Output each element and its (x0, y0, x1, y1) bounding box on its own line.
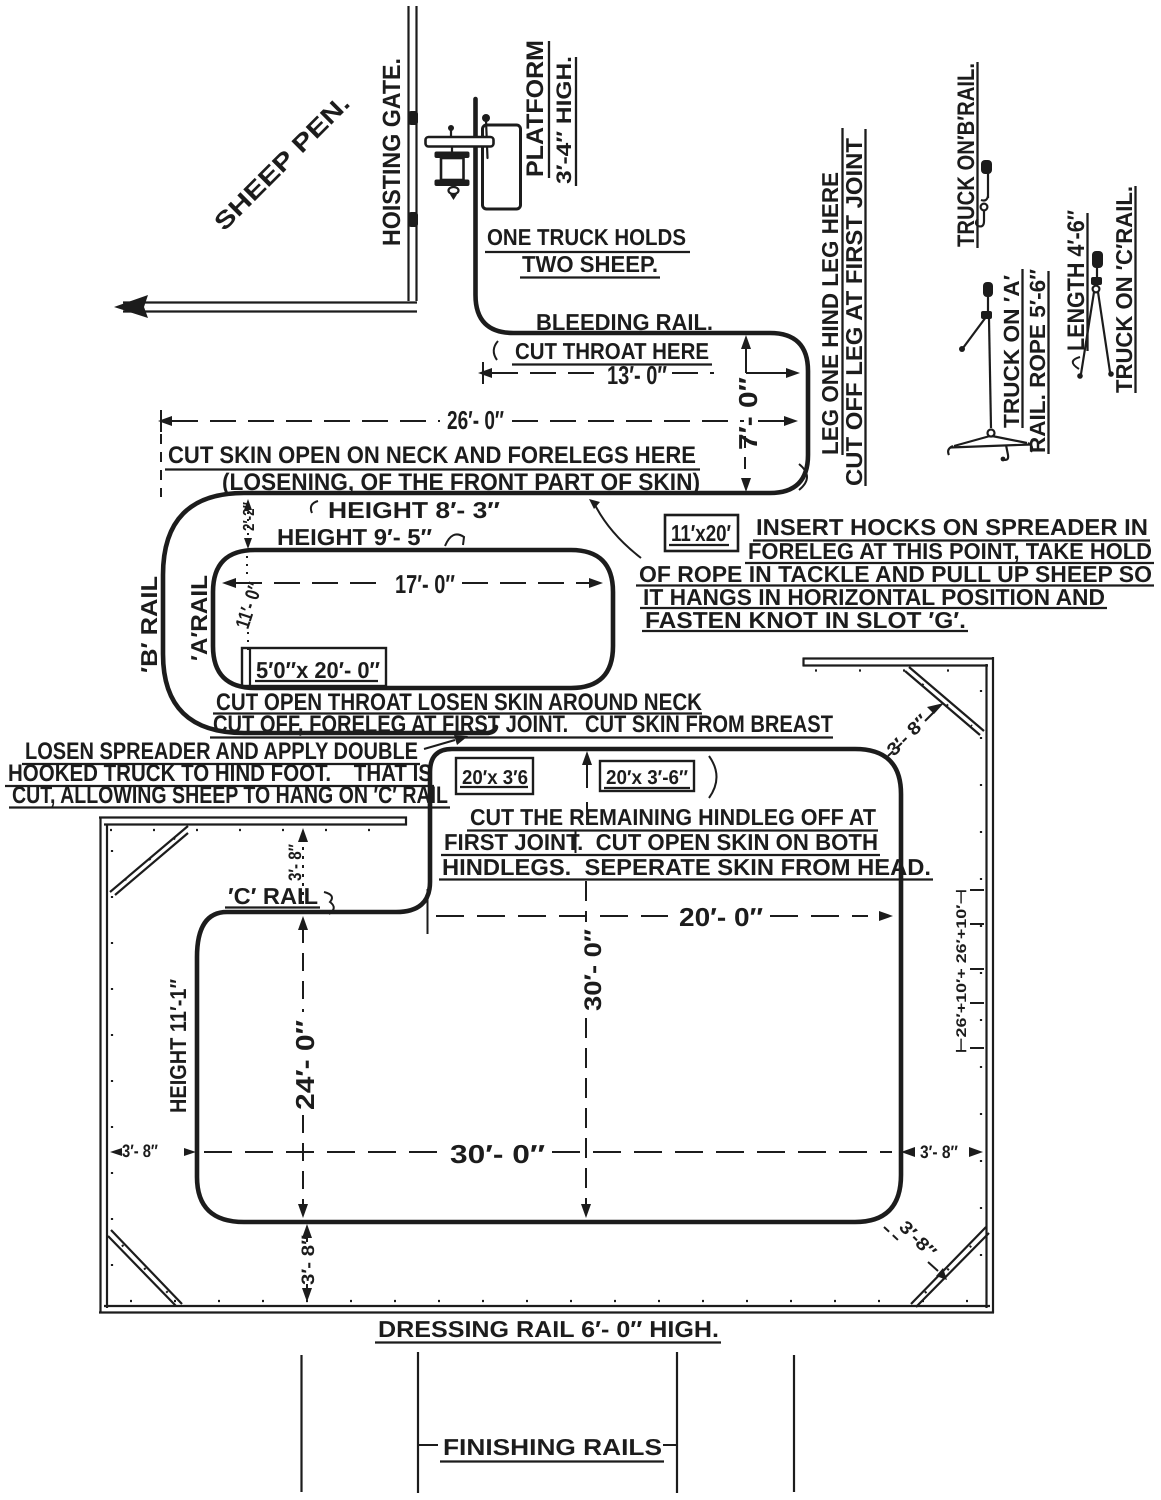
svg-text:3′- 8″: 3′- 8″ (920, 1142, 958, 1162)
svg-text:CUT OFF, FORELEG AT FIRST JOIN: CUT OFF, FORELEG AT FIRST JOINT. CUT SKI… (213, 711, 833, 738)
svg-text:3′- 8″: 3′- 8″ (285, 844, 305, 881)
svg-text:HEIGHT 11′-1″: HEIGHT 11′-1″ (165, 979, 191, 1113)
svg-text:ONE TRUCK HOLDS: ONE TRUCK HOLDS (487, 224, 686, 250)
svg-text:BLEEDING RAIL.: BLEEDING RAIL. (536, 309, 713, 335)
svg-text:3′-4″ HIGH.: 3′-4″ HIGH. (553, 56, 576, 184)
svg-text:26′- 0″: 26′- 0″ (447, 405, 504, 435)
svg-text:CUT, ALLOWING SHEEP TO HANG ON: CUT, ALLOWING SHEEP TO HANG ON ′C′ RAIL (12, 782, 448, 809)
svg-text:LENGTH 4′-6″: LENGTH 4′-6″ (1063, 210, 1090, 351)
svg-text:CUT THE REMAINING HINDLEG OF: CUT THE REMAINING HINDLEG OFF AT (470, 804, 876, 830)
svg-text:2′-2″: 2′-2″ (241, 502, 258, 531)
svg-text:′C′ RAIL: ′C′ RAIL (228, 883, 318, 909)
svg-text:HEIGHT 8′- 3″: HEIGHT 8′- 3″ (328, 497, 500, 523)
svg-text:3′- 8″: 3′- 8″ (298, 1235, 318, 1285)
svg-text:TWO SHEEP.: TWO SHEEP. (522, 251, 658, 277)
svg-text:30′- 0″: 30′- 0″ (580, 928, 607, 1011)
svg-text:HINDLEGS. SEPERATE SKIN FROM: HINDLEGS. SEPERATE SKIN FROM HEAD. (442, 854, 931, 880)
svg-text:11′x20′: 11′x20′ (671, 520, 731, 546)
svg-text:INSERT HOCKS ON SPREADER IN: INSERT HOCKS ON SPREADER IN (756, 514, 1148, 540)
svg-text:PLATFORM: PLATFORM (522, 40, 549, 177)
svg-text:5′0″x 20′- 0″: 5′0″x 20′- 0″ (256, 657, 380, 683)
svg-text:20′x 3′-6″: 20′x 3′-6″ (606, 767, 688, 789)
svg-text:13′- 0″: 13′- 0″ (607, 360, 667, 390)
svg-text:TRUCK ON ′A′: TRUCK ON ′A′ (999, 275, 1024, 428)
svg-text:FIRST JOINT. CUT OPEN SKIN ON: FIRST JOINT. CUT OPEN SKIN ON BOTH (444, 829, 878, 855)
svg-text:FINISHING RAILS: FINISHING RAILS (443, 1434, 662, 1460)
svg-text:FASTEN KNOT IN SLOT ′G′.: FASTEN KNOT IN SLOT ′G′. (645, 607, 966, 633)
svg-text:DRESSING RAIL 6′- 0″ HIGH.: DRESSING RAIL 6′- 0″ HIGH. (378, 1316, 719, 1342)
svg-text:20′x 3′6: 20′x 3′6 (462, 767, 528, 789)
svg-text:⊢26′+10′+ 26′+10′⊣: ⊢26′+10′+ 26′+10′⊣ (953, 889, 969, 1053)
svg-text:TRUCK ON ′C′RAIL.: TRUCK ON ′C′RAIL. (1111, 186, 1137, 393)
svg-text:SHEEP PEN.: SHEEP PEN. (209, 90, 355, 236)
svg-text:′A′RAIL: ′A′RAIL (186, 575, 212, 661)
svg-text:CUT OFF LEG AT FIRST JOINT: CUT OFF LEG AT FIRST JOINT (841, 138, 867, 486)
svg-text:30′- 0″: 30′- 0″ (450, 1139, 545, 1169)
svg-text:LEG ONE HIND LEG HERE: LEG ONE HIND LEG HERE (817, 172, 843, 455)
svg-text:3′- 8″: 3′- 8″ (122, 1141, 158, 1161)
svg-text:24′- 0″: 24′- 0″ (290, 1020, 320, 1110)
svg-text:3′-8″: 3′-8″ (895, 1217, 941, 1263)
svg-text:11′- 0″: 11′- 0″ (232, 580, 268, 632)
svg-text:′B′ RAIL: ′B′ RAIL (136, 576, 162, 673)
svg-text:CUT SKIN OPEN ON NECK AND FORE: CUT SKIN OPEN ON NECK AND FORELEGS HERE (168, 442, 696, 469)
svg-text:HEIGHT 9′- 5″: HEIGHT 9′- 5″ (277, 524, 432, 550)
svg-text:HOISTING GATE.: HOISTING GATE. (378, 58, 406, 246)
svg-text:3′- 8″: 3′- 8″ (883, 710, 933, 760)
svg-text:20′- 0″: 20′- 0″ (679, 902, 763, 932)
svg-text:17′- 0″: 17′- 0″ (395, 569, 455, 599)
svg-text:7′- 0″: 7′- 0″ (733, 377, 763, 450)
svg-text:TRUCK ON′B′RAIL.: TRUCK ON′B′RAIL. (953, 63, 980, 247)
svg-text:RAIL. ROPE 5′-6″: RAIL. ROPE 5′-6″ (1025, 269, 1050, 453)
